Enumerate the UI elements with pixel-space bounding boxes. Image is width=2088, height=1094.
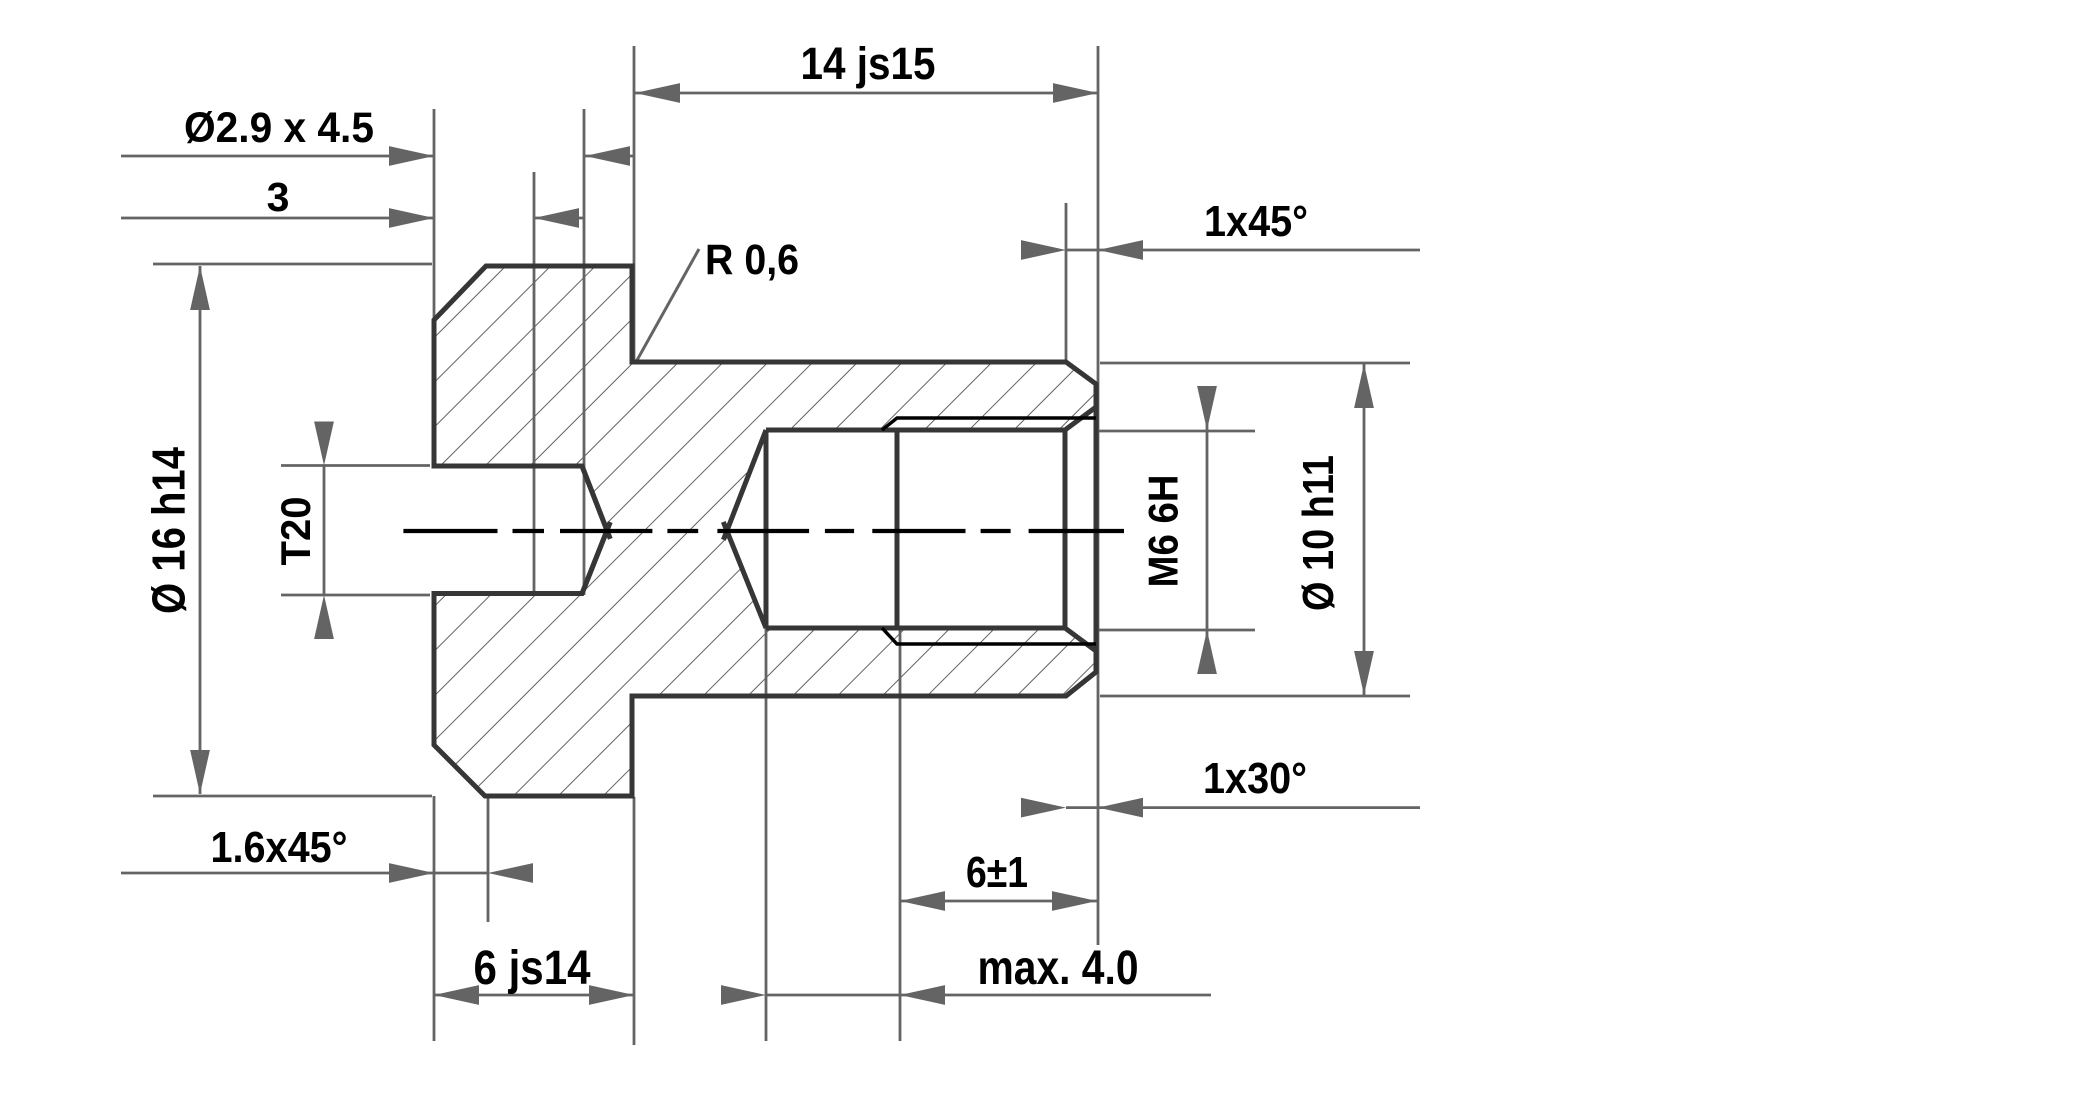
svg-text:Ø 10 h11: Ø 10 h11 <box>1294 455 1343 611</box>
svg-text:M6 6H: M6 6H <box>1140 475 1187 588</box>
svg-text:1x45°: 1x45° <box>1204 198 1308 246</box>
svg-text:Ø2.9 x 4.5: Ø2.9 x 4.5 <box>184 105 374 152</box>
svg-text:Ø 16 h14: Ø 16 h14 <box>143 447 195 614</box>
svg-text:R 0,6: R 0,6 <box>705 237 799 284</box>
svg-text:3: 3 <box>267 174 290 220</box>
svg-text:max. 4.0: max. 4.0 <box>978 942 1139 995</box>
svg-text:1.6x45°: 1.6x45° <box>211 823 348 872</box>
svg-text:1x30°: 1x30° <box>1203 755 1307 803</box>
svg-text:6±1: 6±1 <box>966 849 1028 897</box>
svg-text:14 js15: 14 js15 <box>801 38 936 89</box>
svg-text:T20: T20 <box>272 497 319 566</box>
svg-text:6 js14: 6 js14 <box>474 942 591 995</box>
